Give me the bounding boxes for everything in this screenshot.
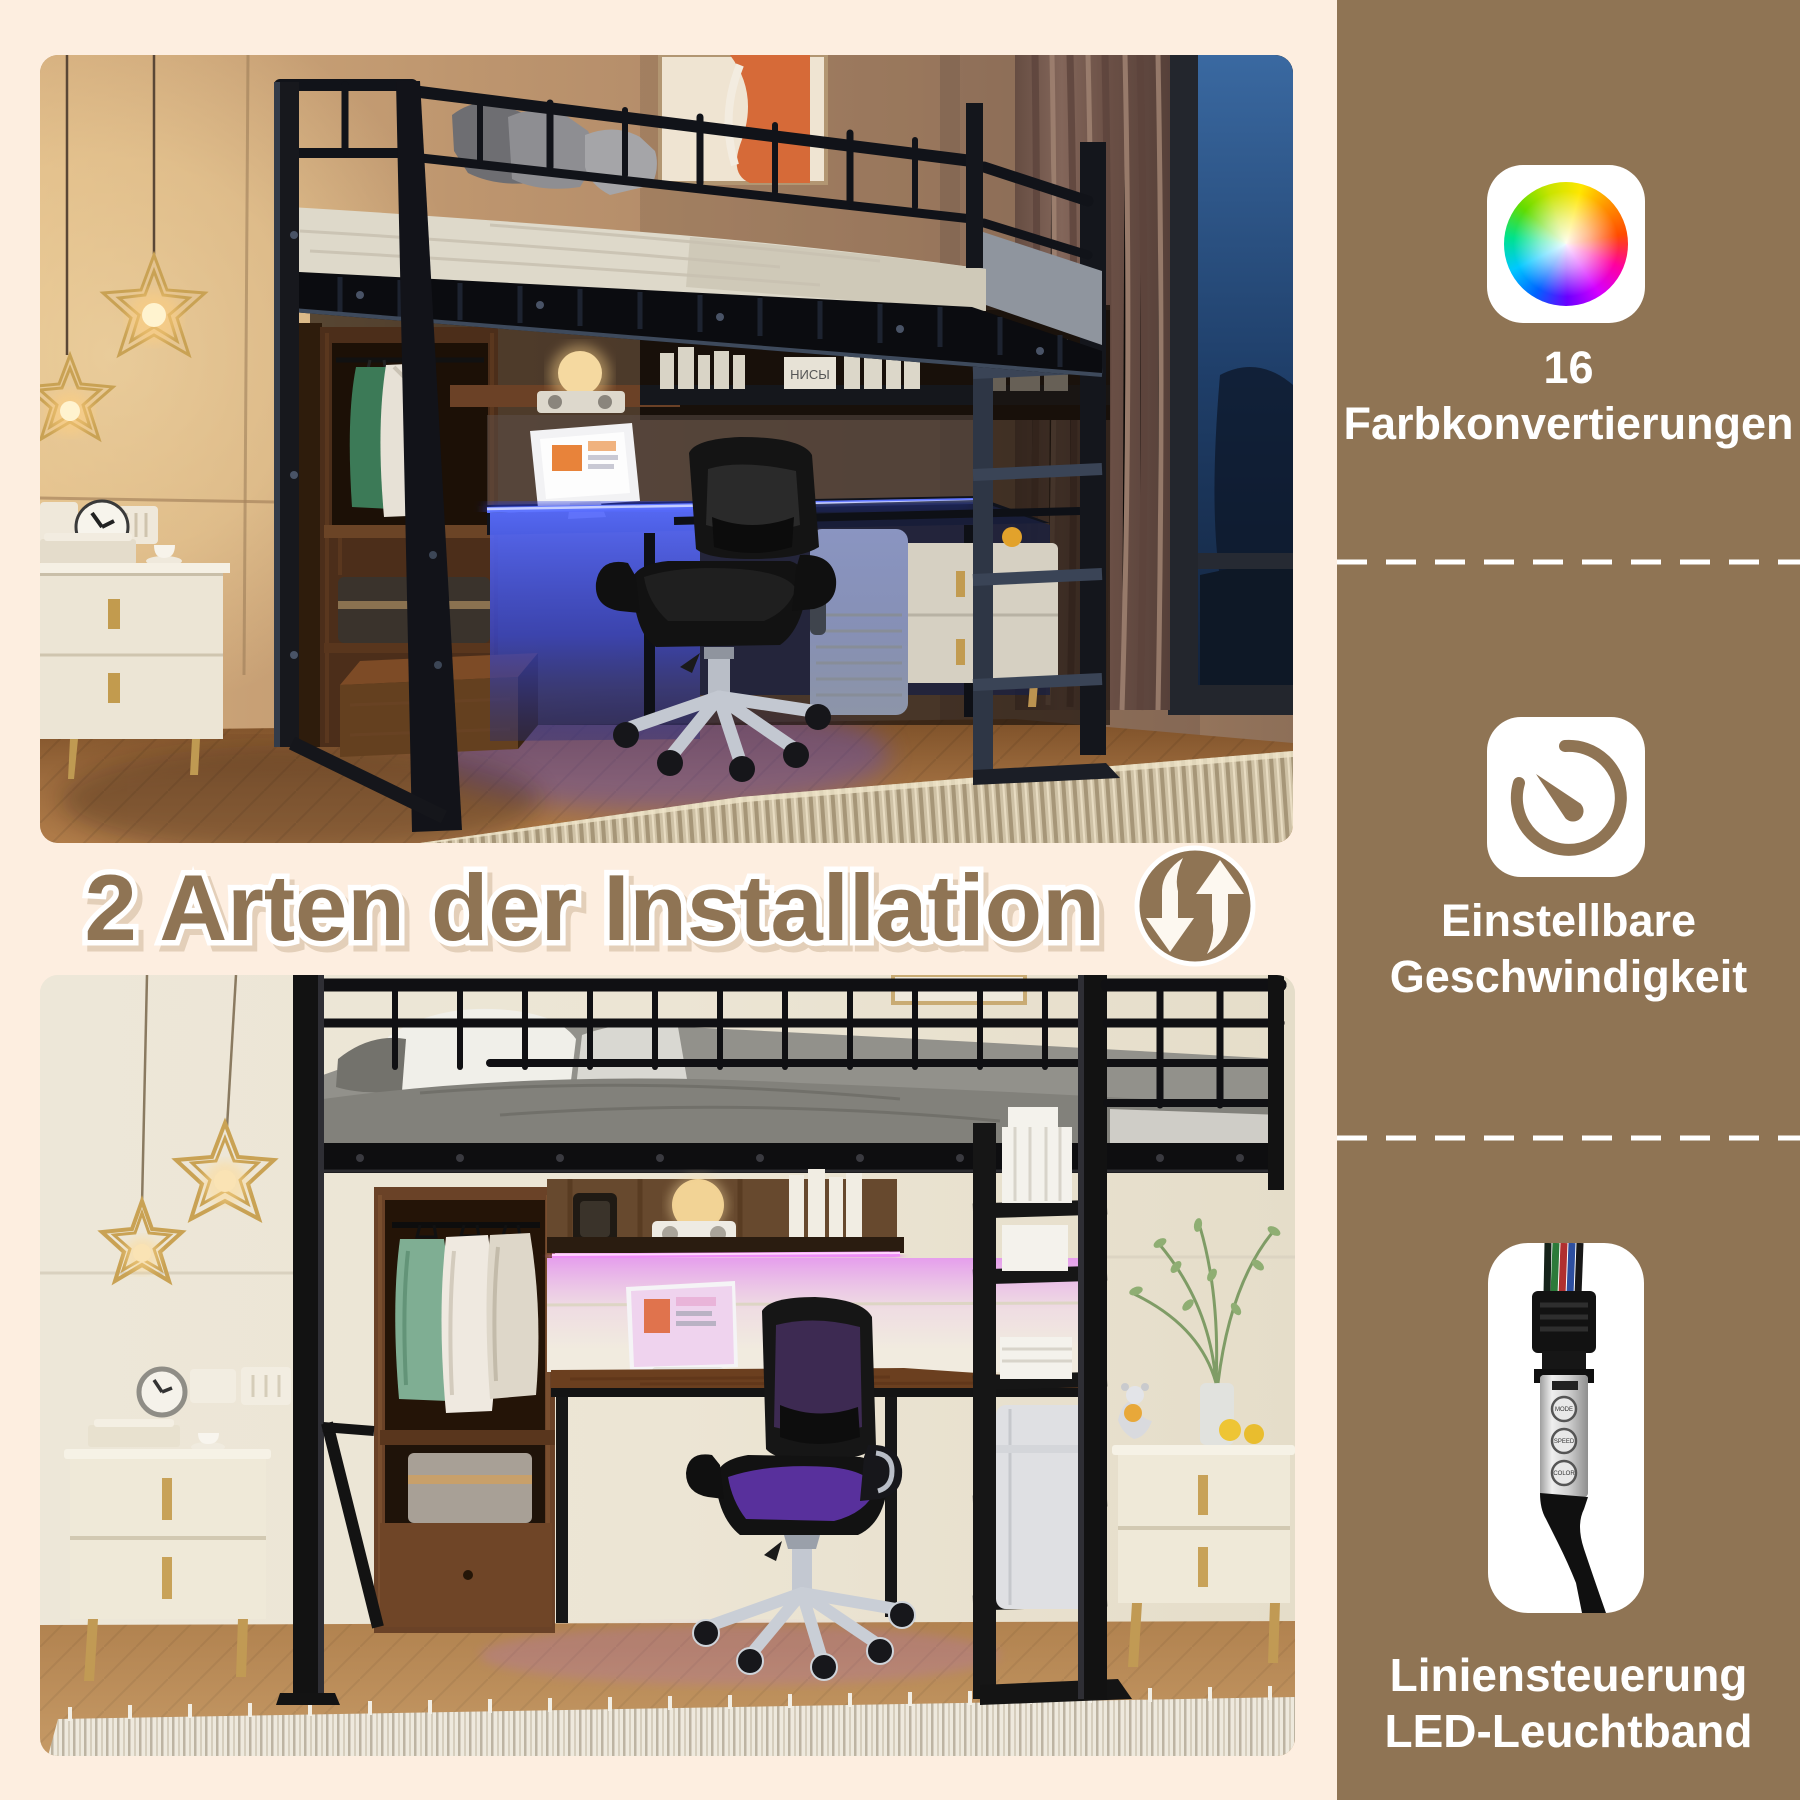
svg-text:2 Arten der Installation: 2 Arten der Installation bbox=[84, 855, 1099, 960]
svg-text:MODE: MODE bbox=[1555, 1407, 1573, 1413]
svg-text:COLOR: COLOR bbox=[1553, 1471, 1575, 1477]
svg-text:SPEED: SPEED bbox=[1554, 1439, 1575, 1445]
svg-text:НИСЫ: НИСЫ bbox=[790, 367, 830, 382]
